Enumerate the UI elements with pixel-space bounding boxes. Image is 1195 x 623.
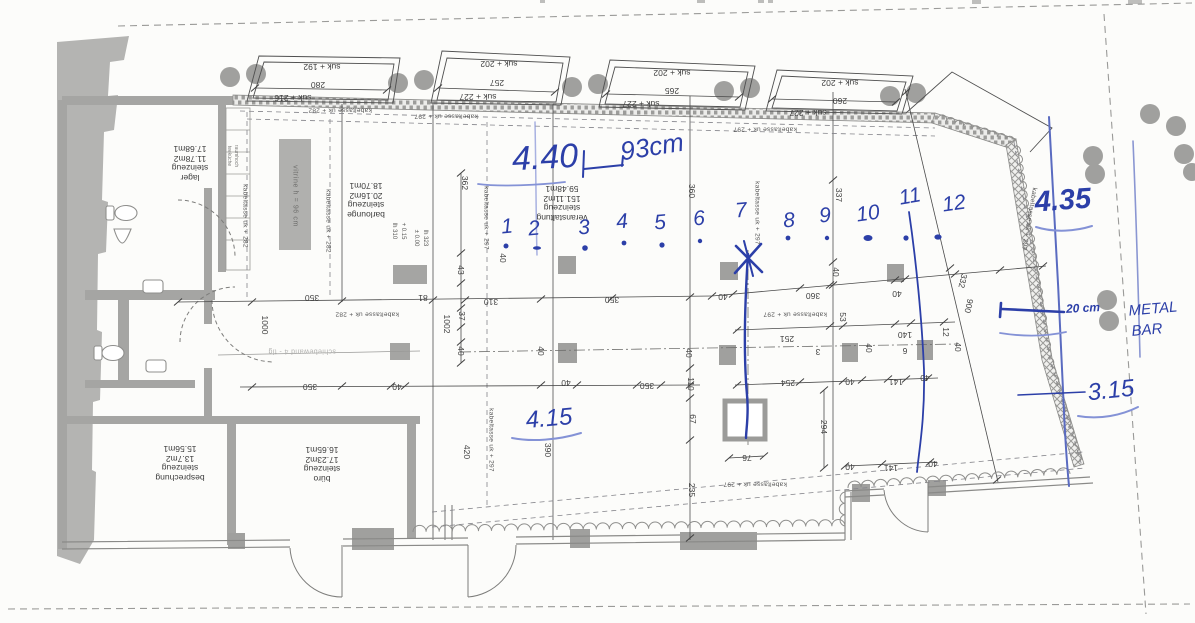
axis-dash-dot bbox=[460, 250, 958, 445]
shelving bbox=[226, 108, 250, 270]
handwritten-dots bbox=[504, 234, 942, 250]
radiator-squiggles bbox=[413, 115, 1081, 532]
hollow-column bbox=[725, 401, 765, 439]
scan-artifacts bbox=[540, 0, 1142, 4]
vitrine-counter bbox=[279, 139, 311, 250]
floor-plan-scan: Grundriss-Scan Veranstaltungsfläche mit … bbox=[0, 0, 1195, 623]
floor-plan-drawing bbox=[0, 0, 1195, 623]
facade-walls-hatched bbox=[233, 95, 1084, 467]
cable-tray-dashed bbox=[240, 111, 1085, 527]
walls bbox=[58, 96, 427, 549]
